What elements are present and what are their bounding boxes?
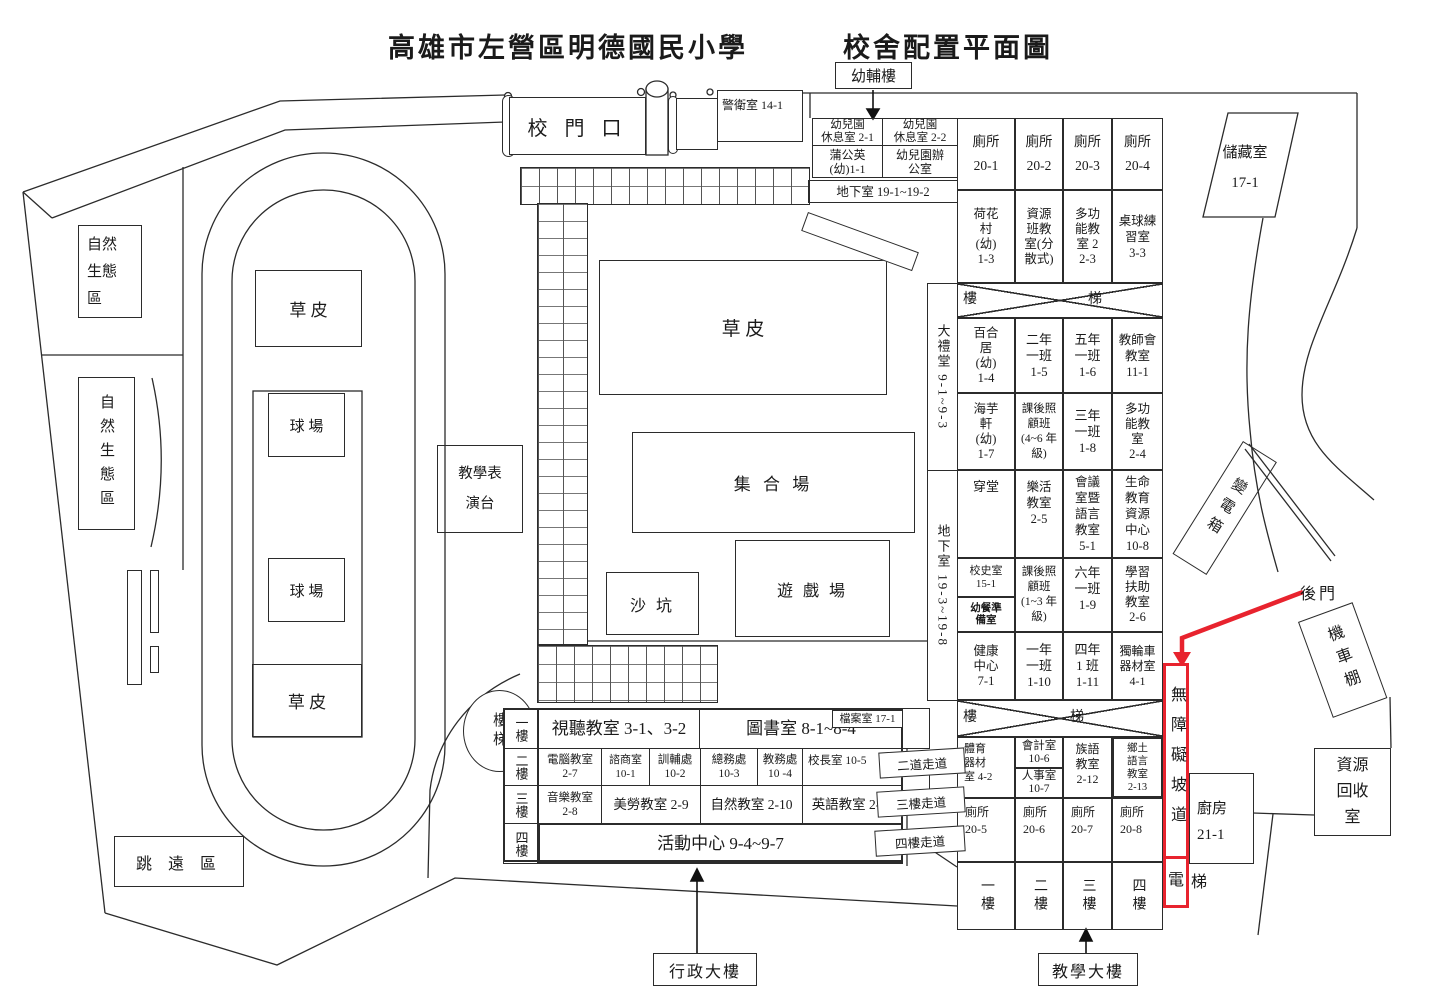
sandbox-label: 沙 坑	[630, 592, 675, 616]
walkway-tag-3f: 三樓走道	[876, 786, 965, 817]
stairs-lower: 樓 梯	[957, 700, 1163, 737]
room-science: 自然教室 2-10	[700, 785, 803, 824]
assembly-label: 集 合 場	[734, 470, 814, 495]
page-title-map: 校舍配置平面圖	[843, 26, 1053, 65]
room-counseling: 諮商室 10-1	[601, 748, 650, 786]
walkway-grid-vertical	[537, 203, 588, 645]
guard-room: 警衛室 14-1	[717, 90, 803, 142]
room-toilet-20-5: 廁所 20-5	[957, 798, 1015, 862]
room-academic-affairs: 教務處 10 -4	[757, 748, 803, 786]
page-title-school: 高雄市左營區明德國民小學	[388, 26, 748, 65]
room-table-tennis: 桌球練 習室 3-3	[1112, 190, 1163, 283]
long-jump-area: 跳 遠 區	[114, 836, 244, 887]
room-toilet-20-4: 廁所 20-4	[1112, 118, 1163, 190]
walkway-tag-4f-label: 四樓走道	[894, 830, 945, 852]
accessible-ramp-box: 無障礙坡道	[1163, 663, 1189, 859]
room-grade2-class1: 二年 一班 1-5	[1015, 318, 1063, 393]
room-toilet-20-3: 廁所 20-3	[1063, 118, 1112, 190]
room-personnel: 人事室 10-7	[1015, 768, 1063, 798]
kg-rest-room-2: 幼兒園 休息室 2-2	[882, 118, 958, 146]
basement-side-label: 地下室 19-3~19-8	[927, 470, 958, 701]
room-music: 音樂教室 2-8	[538, 785, 602, 824]
room-toilet-20-6: 廁所 20-6	[1015, 798, 1063, 862]
kitchen: 廚房 21-1	[1189, 773, 1254, 864]
admin-building-callout: 行政大樓	[653, 953, 757, 986]
youfulou-label: 幼輔樓	[851, 65, 896, 86]
walkway-tag-2f: 二道走道	[878, 747, 965, 778]
room-general-affairs: 總務處 10-3	[700, 748, 758, 786]
walkway-tag-4f: 四樓走道	[874, 825, 965, 856]
room-conference-language: 會議 室暨 語言 教室 5-1	[1063, 470, 1112, 558]
stairs-ti: 梯	[1070, 710, 1084, 726]
sandbox: 沙 坑	[606, 572, 699, 635]
eco-area-2: 自然生態區	[78, 377, 135, 530]
walkway-tag-3f-label: 三樓走道	[895, 791, 946, 813]
assembly-ground: 集 合 場	[632, 432, 915, 533]
room-afterschool-4-6: 課後照 顧班 (4~6 年 級)	[1015, 393, 1063, 470]
room-accounting: 會計室 10-6	[1015, 737, 1063, 768]
room-teachers-assoc: 教師會 教室 11-1	[1112, 318, 1163, 393]
floor-label-4f: 四樓	[1112, 862, 1163, 930]
grass-track-top: 草 皮	[255, 270, 362, 347]
stage-platform-label: 教學表 演台	[458, 459, 502, 519]
floor-label-1f: 一樓	[957, 862, 1015, 930]
room-multi-2: 多功 能教 室 2 2-3	[1063, 190, 1112, 283]
admin-building-callout-label: 行政大樓	[669, 958, 741, 982]
bleacher-1	[127, 570, 142, 685]
room-life-edu-center: 生命 教育 資源 中心 10-8	[1112, 470, 1163, 558]
room-toilet-20-8: 廁所 20-8	[1112, 798, 1163, 862]
stairs-lou: 樓	[963, 710, 977, 726]
recycle-room: 資源 回收 室	[1314, 748, 1391, 836]
youfulou-callout: 幼輔樓	[835, 62, 912, 89]
room-lotus-village: 荷花 村 (幼) 1-3	[957, 190, 1015, 283]
elevator-label-in: 電	[1168, 866, 1184, 890]
auditorium-side-label: 大禮堂 9-1~9-3	[927, 283, 958, 471]
room-grade4-class1: 四年 1 班 1-11	[1063, 632, 1112, 700]
walkway-grid-bottom	[537, 645, 718, 703]
teaching-building-callout-label: 教學大樓	[1052, 958, 1124, 982]
room-afterschool-1-3: 課後照 顧班 (1~3 年 級)	[1015, 558, 1063, 632]
accessible-ramp-label: 無障礙坡道	[1164, 686, 1188, 836]
eco-area-1-label: 自然 生態 區	[87, 232, 117, 313]
gate-wall	[676, 98, 718, 150]
admin-floor-1f: 一樓	[503, 708, 538, 749]
admin-building: 一樓 二樓 三樓 四樓 視聽教室 3-1、3-2 圖書室 8-1~8-4 檔案室…	[503, 708, 903, 862]
room-computer: 電腦教室 2-7	[538, 748, 602, 786]
storage-room: 儲藏室 17-1	[1205, 138, 1285, 198]
kg-dandelion-class: 蒲公英 (幼)1-1	[812, 145, 883, 178]
room-multi-2-4: 多功 能教 室 2-4	[1112, 393, 1163, 470]
admin-floor-4f: 四樓	[503, 823, 538, 864]
room-toilet-20-2: 廁所 20-2	[1015, 118, 1063, 190]
kg-rest-room-1: 幼兒園 休息室 2-1	[812, 118, 883, 146]
grass-center-label: 草 皮	[722, 314, 765, 341]
guard-room-label: 警衛室 14-1	[722, 96, 783, 113]
room-discipline-office: 訓輔處 10-2	[649, 748, 701, 786]
grass-track-top-label: 草 皮	[289, 296, 327, 321]
room-health-center: 健康 中心 7-1	[957, 632, 1015, 700]
room-av-classroom: 視聽教室 3-1、3-2	[538, 708, 700, 749]
eco-area-2-label: 自然生態區	[96, 394, 117, 514]
room-lehuo: 樂活 教室 2-5	[1015, 470, 1063, 558]
room-pe-equipment: 體育 器材 室 4-2	[957, 737, 1015, 798]
playground-label: 遊 戲 場	[777, 577, 848, 601]
playground: 遊 戲 場	[735, 540, 890, 637]
court-2: 球 場	[268, 558, 345, 622]
floor-label-3f: 三樓	[1063, 862, 1112, 930]
room-learning-support: 學習 扶助 教室 2-6	[1112, 558, 1163, 632]
grass-track-bottom: 草 皮	[252, 664, 362, 737]
room-toilet-20-1: 廁所 20-1	[957, 118, 1015, 190]
room-grade6-class1: 六年 一班 1-9	[1063, 558, 1112, 632]
room-indigenous-lang: 族語 教室 2-12	[1063, 737, 1112, 798]
court-1: 球 場	[268, 393, 345, 457]
court-1-label: 球 場	[290, 415, 324, 436]
campus-map: 高雄市左營區明德國民小學 校舍配置平面圖 校 門 口 警衛室 14-1 幼輔樓 …	[0, 0, 1450, 1002]
room-unicycle: 獨輪車 器材室 4-1	[1112, 632, 1163, 700]
room-activity-center: 活動中心 9-4~9-7	[538, 823, 903, 864]
gate-banner: 校 門 口	[509, 97, 646, 155]
court-2-label: 球 場	[290, 580, 324, 601]
room-kg-meal-prep: 幼餐準 備室	[957, 597, 1015, 632]
grass-center: 草 皮	[599, 260, 887, 395]
bleacher-2	[150, 570, 159, 633]
stairs-upper: 樓 梯	[957, 283, 1163, 318]
room-toilet-20-7: 廁所 20-7	[1063, 798, 1112, 862]
basement-19-1: 地下室 19-1~19-2	[808, 180, 958, 203]
room-hallway: 穿堂	[957, 470, 1015, 558]
eco-area-1: 自然 生態 區	[78, 225, 142, 318]
elevator-label-out: 梯	[1191, 868, 1207, 892]
room-school-history: 校史室 15-1	[957, 558, 1015, 597]
room-calla-house: 海芋 軒 (幼) 1-7	[957, 393, 1015, 470]
room-arts-crafts: 美勞教室 2-9	[601, 785, 701, 824]
room-local-lang: 鄉土 語言 教室 2-13	[1112, 737, 1163, 798]
room-grade5-class1: 五年 一班 1-6	[1063, 318, 1112, 393]
room-archive: 檔案室 17-1	[832, 710, 903, 728]
room-resource-class: 資源 班教 室(分 散式)	[1015, 190, 1063, 283]
stairs-ti: 梯	[1088, 292, 1102, 308]
room-grade3-class1: 三年 一班 1-8	[1063, 393, 1112, 470]
grass-track-bottom-label: 草 皮	[288, 688, 326, 713]
elevator-box: 電	[1163, 856, 1189, 908]
stage-platform: 教學表 演台	[437, 445, 523, 533]
walkway-grid-top	[520, 167, 810, 205]
floor-label-2f: 二樓	[1015, 862, 1063, 930]
stairs-lou: 樓	[963, 292, 977, 308]
walkway-tag-2f-label: 二道走道	[896, 752, 947, 774]
gate-banner-label: 校 門 口	[528, 112, 628, 141]
room-lily-house: 百合 居 (幼) 1-4	[957, 318, 1015, 393]
room-grade1-class1: 一年 一班 1-10	[1015, 632, 1063, 700]
back-gate-label: 後門	[1300, 580, 1338, 604]
bleacher-3	[150, 646, 159, 673]
admin-floor-3f: 三樓	[503, 785, 538, 824]
teaching-building-callout: 教學大樓	[1038, 953, 1138, 986]
back-gate-arrow	[1173, 592, 1303, 667]
kg-office: 幼兒園辦 公室	[882, 145, 958, 178]
teaching-building-grid: 廁所 20-1 廁所 20-2 廁所 20-3 廁所 20-4 荷花 村 (幼)…	[957, 118, 1163, 930]
long-jump-label: 跳 遠 區	[136, 850, 222, 874]
admin-floor-2f: 二樓	[503, 748, 538, 786]
